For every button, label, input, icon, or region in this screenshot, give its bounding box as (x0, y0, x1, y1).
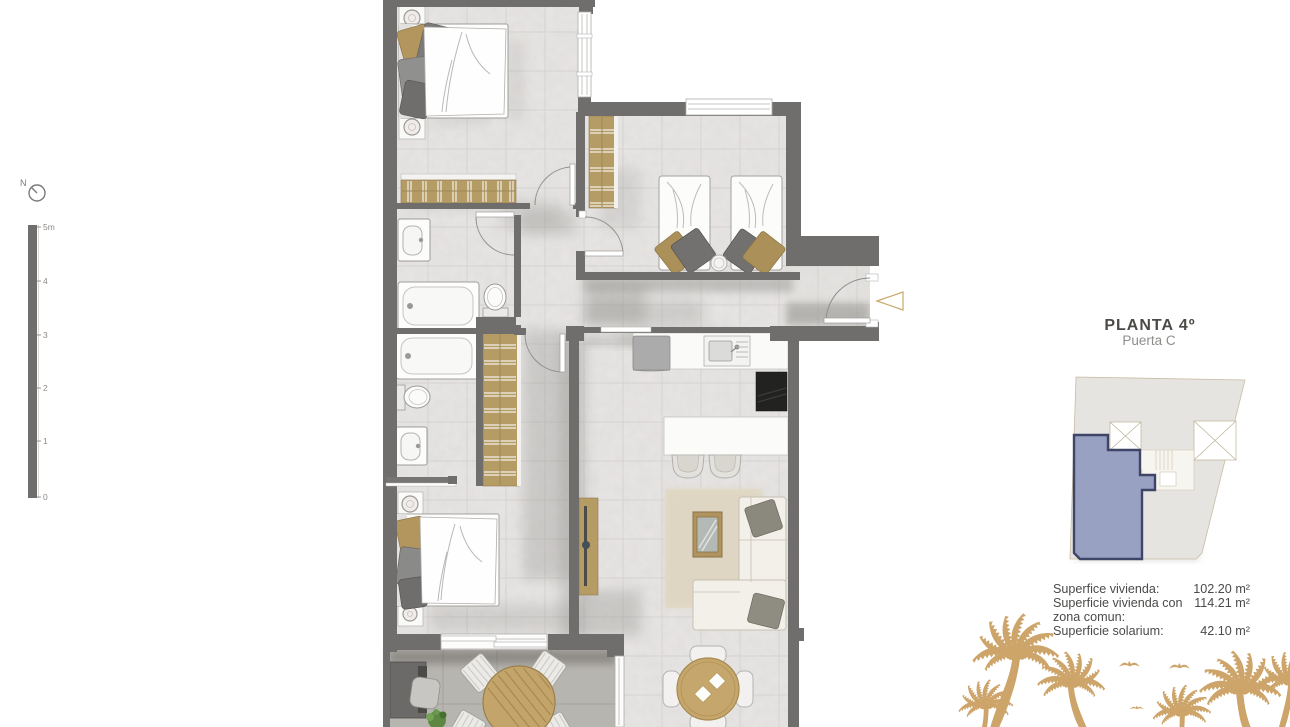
svg-text:Superfice vivienda:: Superfice vivienda: (1053, 582, 1159, 596)
svg-text:zona comun:: zona comun: (1053, 610, 1125, 624)
svg-text:2: 2 (43, 383, 48, 393)
svg-text:102.20 m²: 102.20 m² (1193, 582, 1250, 596)
svg-text:3: 3 (43, 330, 48, 340)
svg-text:42.10 m²: 42.10 m² (1200, 624, 1250, 638)
svg-text:5m: 5m (43, 222, 55, 232)
svg-text:Superficie vivienda con: Superficie vivienda con (1053, 596, 1183, 610)
svg-text:PLANTA 4º: PLANTA 4º (1104, 317, 1195, 334)
svg-text:Puerta C: Puerta C (1122, 333, 1176, 348)
svg-text:Superficie solarium:: Superficie solarium: (1053, 624, 1164, 638)
svg-text:1: 1 (43, 436, 48, 446)
svg-text:114.21 m²: 114.21 m² (1194, 596, 1250, 610)
svg-text:0: 0 (43, 492, 48, 502)
svg-text:4: 4 (43, 276, 48, 286)
svg-text:N: N (20, 178, 27, 188)
